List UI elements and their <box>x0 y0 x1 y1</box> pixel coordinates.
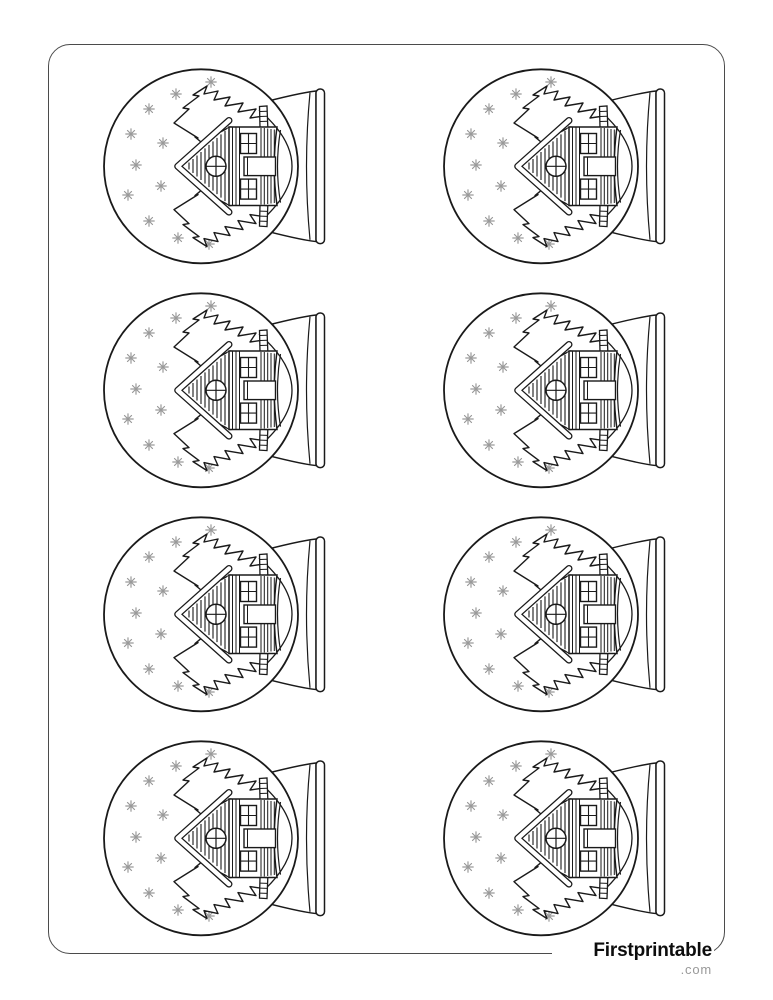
snow-globe-art <box>104 517 325 711</box>
brand-name: Firstprintable <box>560 941 712 962</box>
footer-logo: Firstprintable .com <box>552 941 714 978</box>
page: Firstprintable .com <box>0 0 773 1000</box>
snow-globe-art <box>104 69 325 263</box>
snow-globe-art <box>444 69 665 263</box>
globe-instances <box>104 69 665 935</box>
snow-globe-art <box>444 293 665 487</box>
snow-globe-art <box>444 741 665 935</box>
brand-domain: .com <box>560 963 712 976</box>
snow-globe-art <box>444 517 665 711</box>
snow-globe-art <box>104 741 325 935</box>
globes-layer <box>0 0 773 1000</box>
snow-globe-art <box>104 293 325 487</box>
